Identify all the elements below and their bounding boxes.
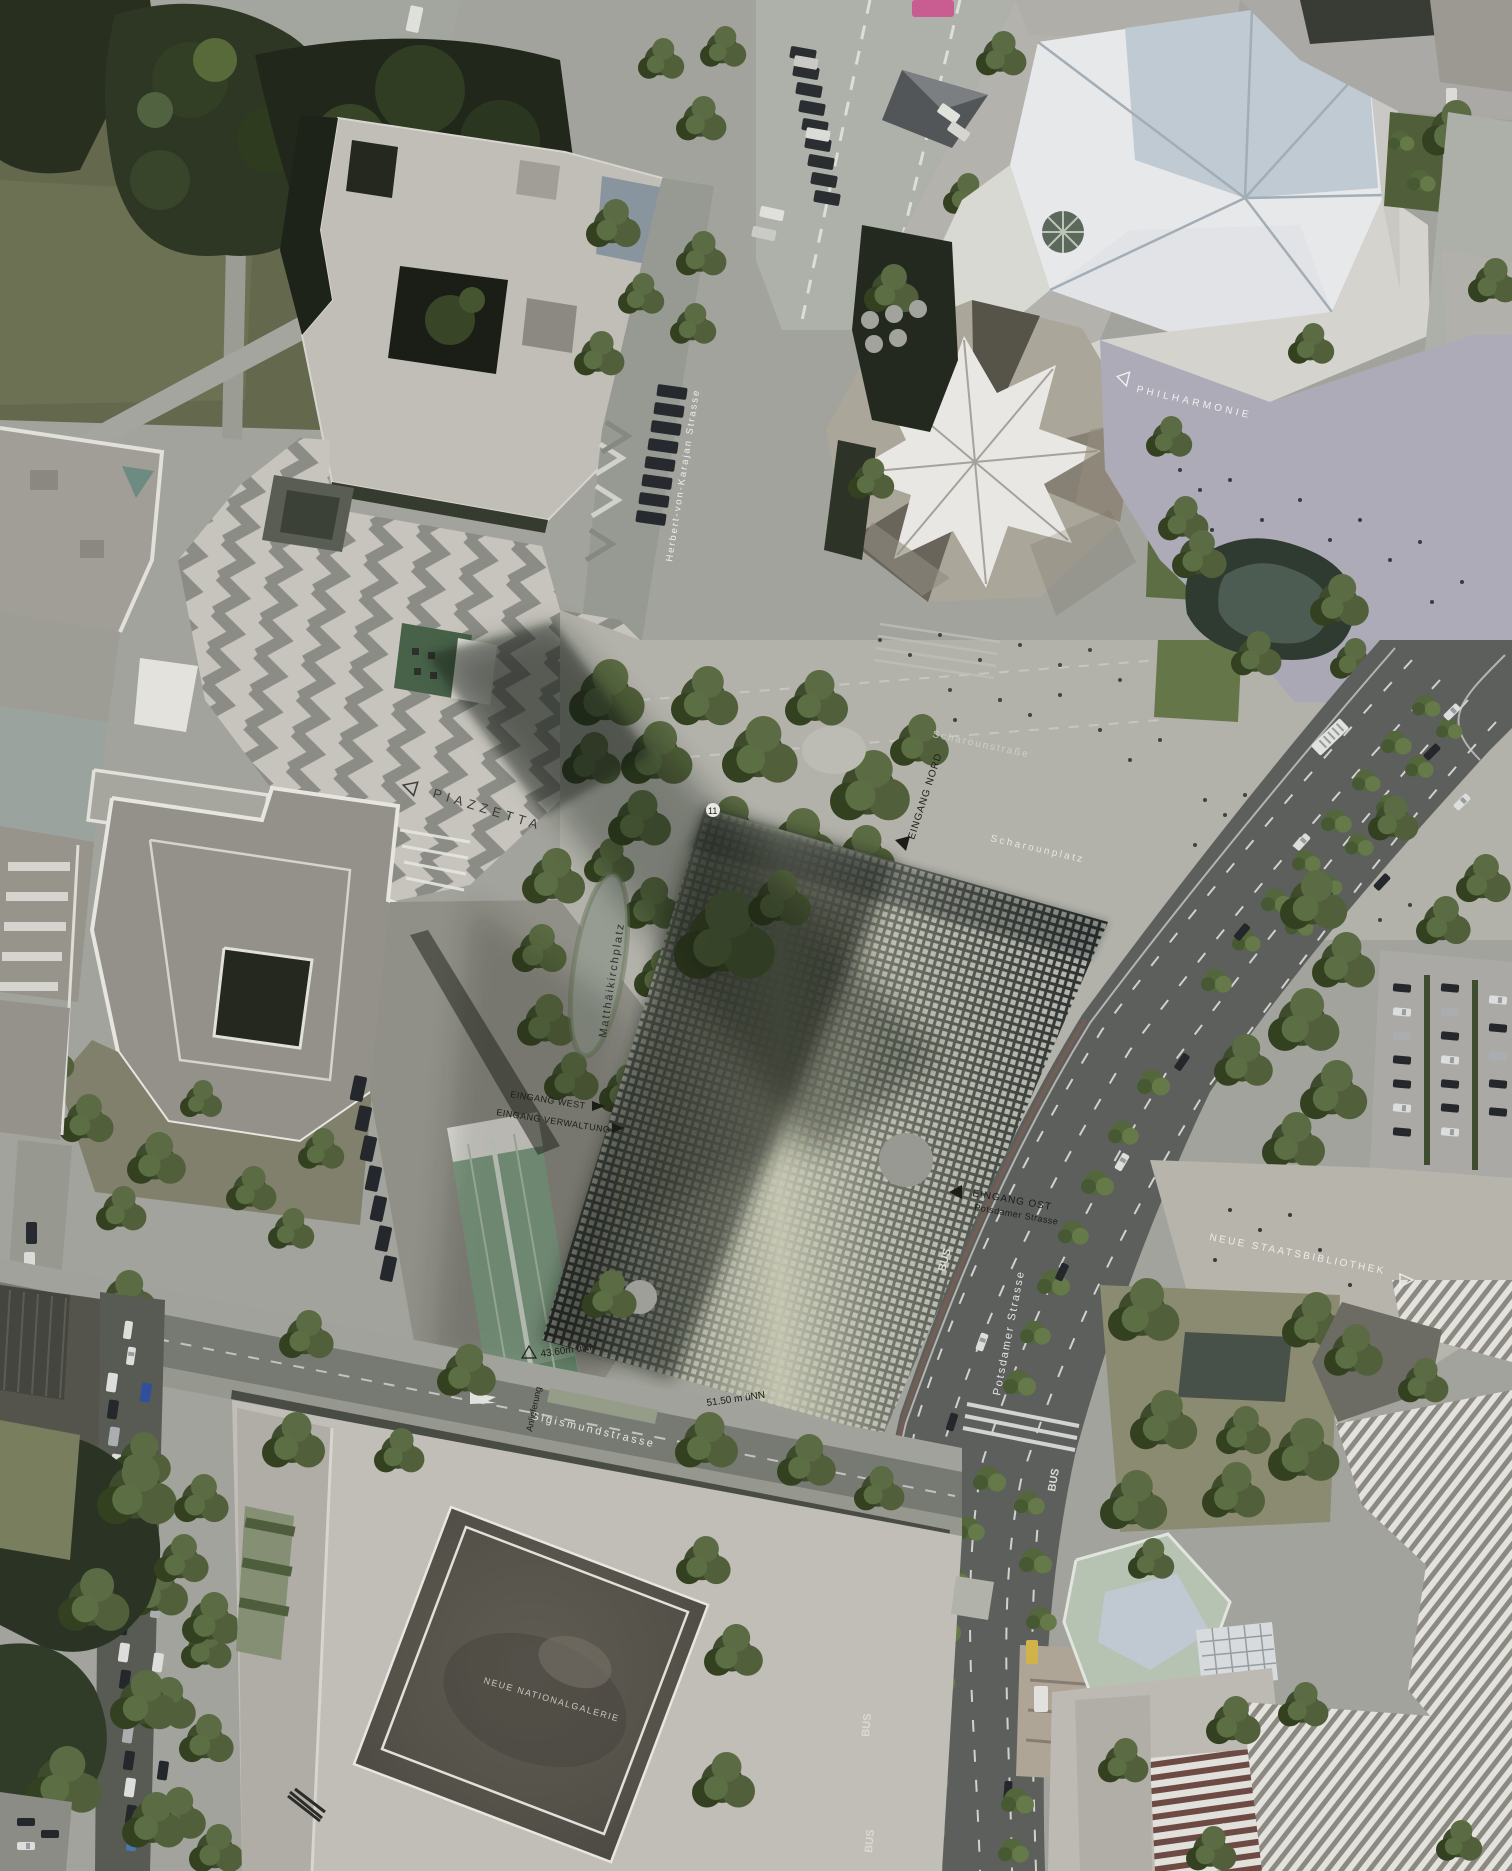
svg-text:11: 11 bbox=[708, 806, 717, 816]
